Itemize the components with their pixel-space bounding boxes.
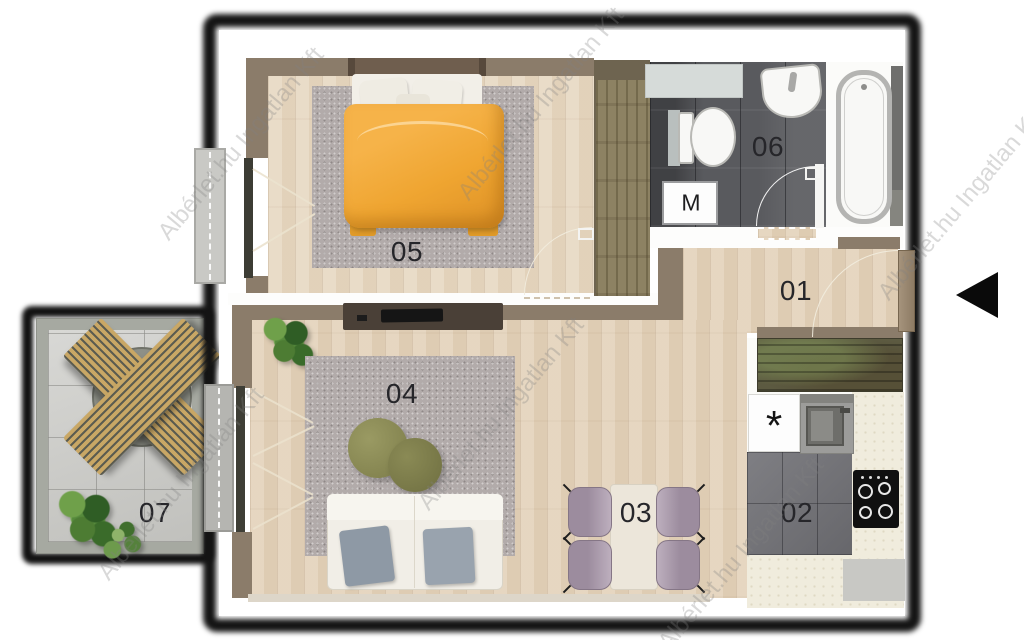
cooktop: [853, 470, 899, 528]
living-bottom-wall: [248, 594, 710, 602]
room-label-06: 06: [752, 131, 784, 163]
toilet-bowl: [690, 107, 736, 167]
dining-chair: [656, 540, 700, 590]
tv-icon: [381, 308, 443, 322]
cooktop-dots: [861, 476, 864, 479]
sofa-back: [327, 494, 503, 520]
bedroom-window-dash: [209, 152, 211, 280]
kitchen-mat: [843, 559, 905, 601]
cooktop-burner: [878, 504, 893, 519]
bedroom-left-wall-upper: [246, 58, 268, 158]
sofa-cushion: [423, 527, 476, 586]
kitchen-sink-top-band: [800, 394, 854, 403]
room-label-05: 05: [391, 236, 423, 268]
wardrobe: [594, 60, 650, 296]
bathroom-door-handle: [805, 167, 822, 180]
living-window-frame: [236, 386, 245, 532]
kitchen-faucet: [840, 408, 850, 413]
cooktop-burner: [878, 482, 891, 495]
room-label-04: 04: [386, 378, 418, 410]
room-label-02: 02: [781, 497, 813, 529]
cooktop-burner: [859, 506, 872, 519]
sofa-divider: [414, 496, 415, 588]
bathroom-cabinet: [645, 64, 743, 98]
bedroom-door-threshold: [524, 297, 590, 299]
kitchen-counter: [757, 338, 903, 392]
kitchen-sink-basin-inner: [811, 411, 833, 441]
room-label-03: 03: [620, 497, 652, 529]
dining-chair: [568, 487, 612, 537]
bed-duvet: [344, 104, 504, 228]
entrance-arrow-icon: [956, 272, 998, 318]
tv-remote: [357, 315, 367, 321]
bathtub-drain: [861, 84, 867, 90]
living-window-dash: [218, 388, 220, 528]
bathroom-door-threshold: [758, 227, 816, 240]
entry-top-wall: [838, 237, 900, 249]
floor-plan: 07 05 M: [0, 0, 1024, 640]
entry-door-leaf: [898, 250, 915, 332]
living-left-wall-lower: [232, 532, 252, 598]
cooktop-burner: [858, 484, 873, 499]
room-label-07: 07: [139, 497, 171, 529]
room-label-01: 01: [780, 275, 812, 307]
bathtub-inner-ring: [844, 78, 884, 216]
wardrobe-top-shelf: [594, 60, 650, 80]
coffee-table: [388, 438, 442, 492]
bedroom-door-handle: [578, 228, 594, 240]
sofa-cushion: [339, 525, 395, 587]
dining-chair: [568, 540, 612, 590]
washing-machine-label: M: [681, 190, 700, 217]
bedroom-window-frame: [244, 158, 253, 278]
refrigerator-label: *: [748, 402, 800, 450]
dining-chair: [656, 487, 700, 537]
living-left-wall-upper: [232, 312, 252, 388]
